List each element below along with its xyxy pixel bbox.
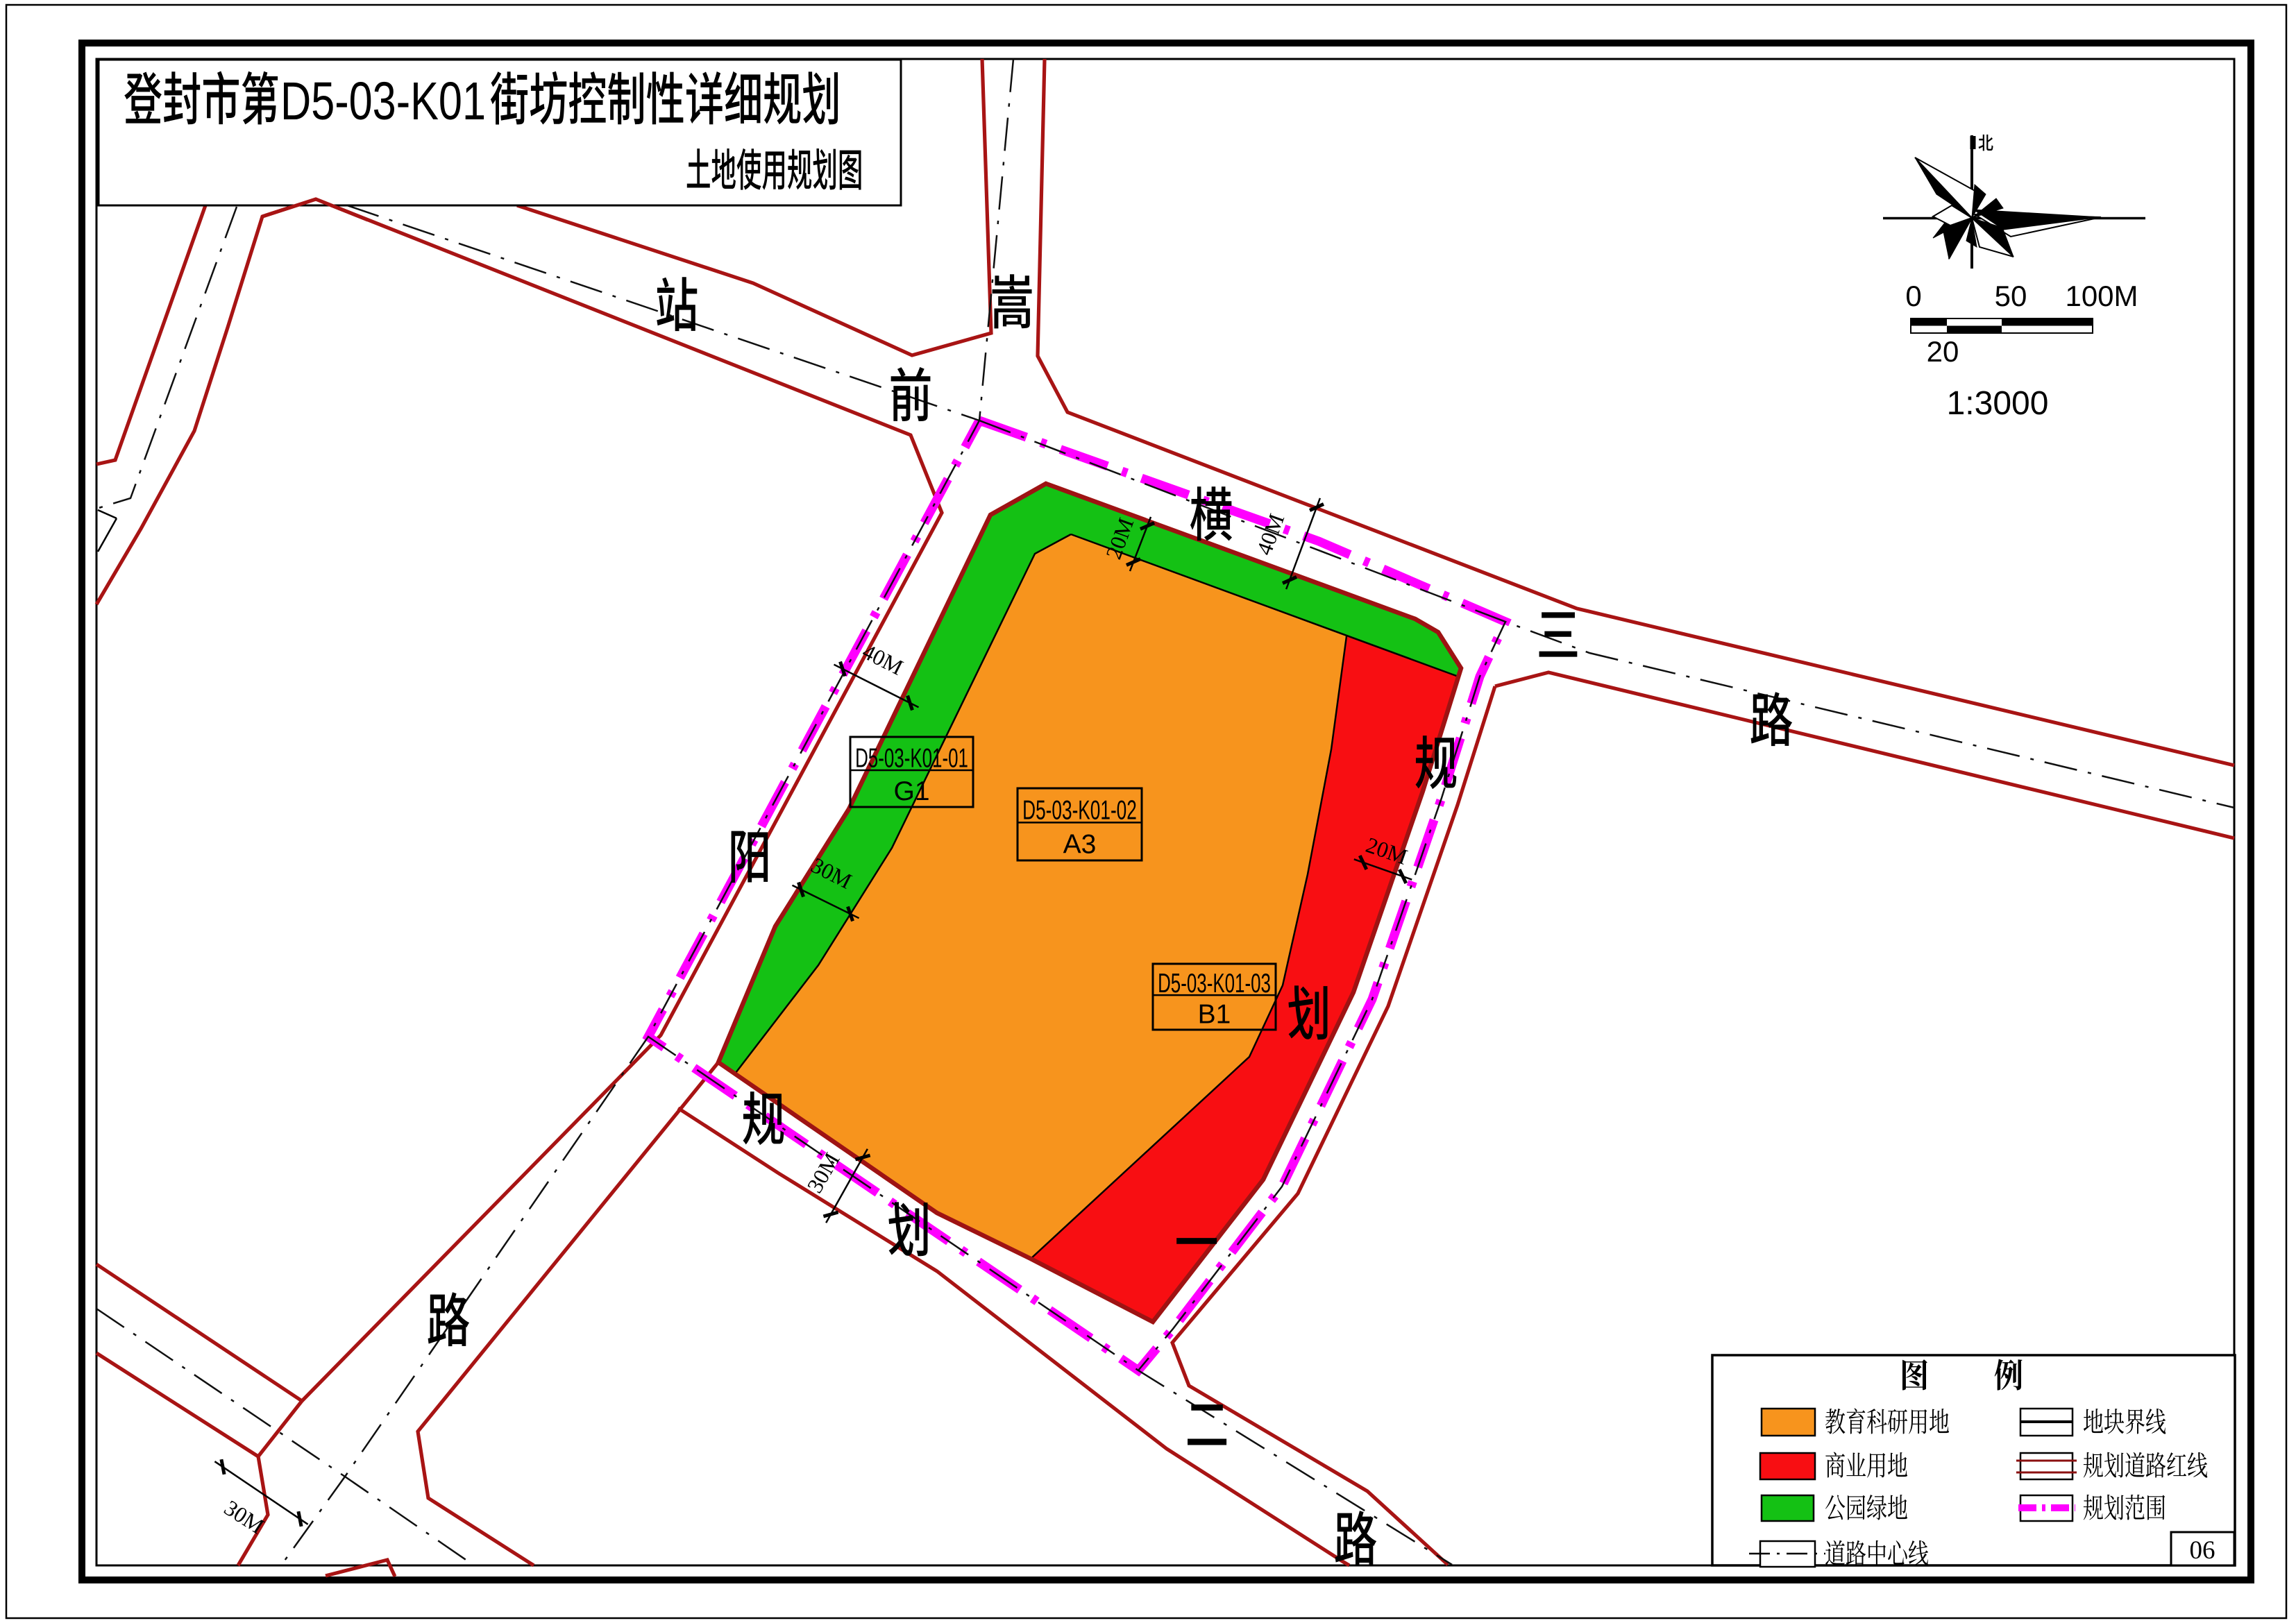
svg-text:50: 50 bbox=[1995, 280, 2027, 312]
svg-text:D5-03-K01-03: D5-03-K01-03 bbox=[1158, 969, 1271, 999]
svg-text:0: 0 bbox=[1905, 280, 1921, 312]
svg-text:B1: B1 bbox=[1198, 1000, 1231, 1030]
svg-text:1:3000: 1:3000 bbox=[1947, 385, 2049, 422]
svg-text:100M: 100M bbox=[2065, 280, 2138, 312]
svg-text:D5-03-K01: D5-03-K01 bbox=[280, 71, 486, 131]
svg-text:D5-03-K01-02: D5-03-K01-02 bbox=[1022, 796, 1137, 826]
svg-text:06: 06 bbox=[2190, 1536, 2215, 1565]
svg-text:20: 20 bbox=[1927, 335, 1959, 368]
svg-text:A3: A3 bbox=[1063, 830, 1097, 860]
svg-text:G1: G1 bbox=[893, 776, 929, 806]
svg-text:D5-03-K01-01: D5-03-K01-01 bbox=[855, 743, 968, 773]
